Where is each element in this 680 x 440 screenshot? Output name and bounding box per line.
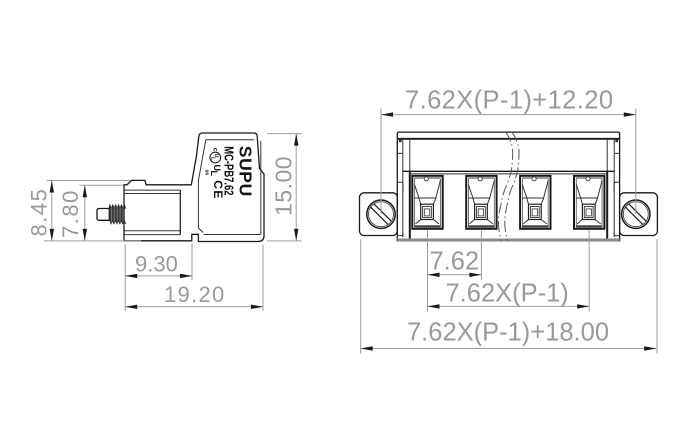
svg-text:7.62X(P-1)+12.20: 7.62X(P-1)+12.20	[405, 87, 613, 115]
svg-text:7.62: 7.62	[430, 248, 480, 276]
svg-text:us: us	[204, 170, 210, 176]
svg-text:7.62X(P-1): 7.62X(P-1)	[446, 280, 569, 308]
svg-text:19.20: 19.20	[164, 282, 226, 307]
svg-text:7.80: 7.80	[58, 189, 83, 238]
svg-text:SUPU: SUPU	[236, 146, 256, 197]
svg-text:L: L	[209, 171, 219, 177]
svg-text:7.62X(P-1)+18.00: 7.62X(P-1)+18.00	[407, 319, 609, 347]
svg-text:CE: CE	[211, 180, 225, 200]
svg-text:c: c	[211, 148, 218, 152]
svg-text:9.30: 9.30	[135, 252, 178, 277]
svg-text:15.00: 15.00	[271, 156, 297, 216]
svg-text:8.45: 8.45	[27, 188, 52, 237]
